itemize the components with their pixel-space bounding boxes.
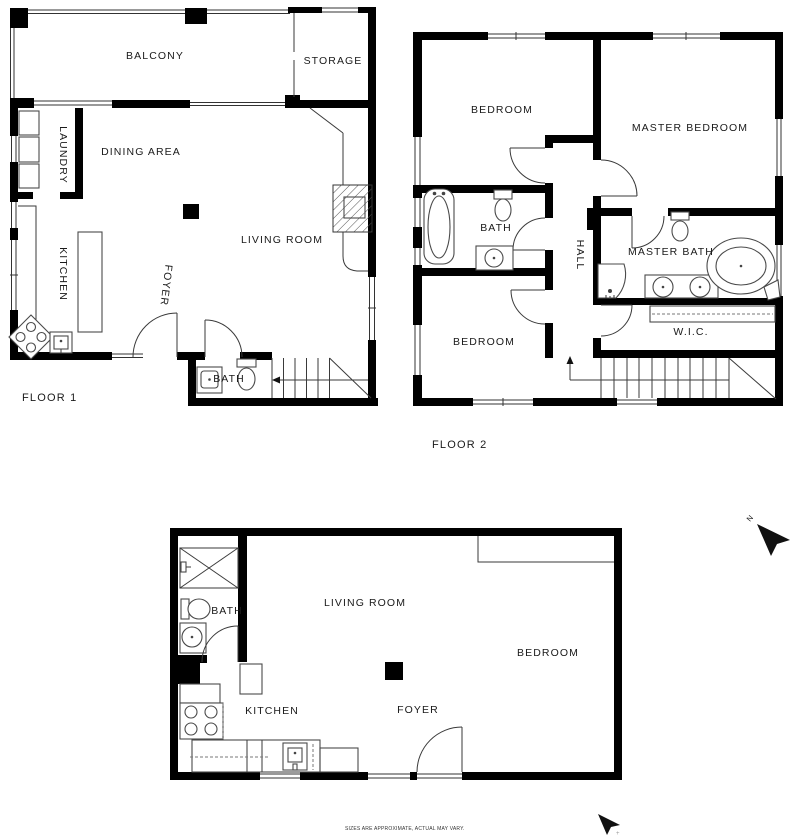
kitchen-sink-icon <box>50 332 72 353</box>
room-label-balcony: BALCONY <box>126 50 184 62</box>
toilet-icon-f2 <box>494 190 512 221</box>
room-label-master-bedroom: MASTER BEDROOM <box>632 122 748 134</box>
north-label: N <box>745 513 755 523</box>
room-label-dining-area: DINING AREA <box>101 146 181 158</box>
door-bath-f2 <box>513 218 545 250</box>
floorplan-page: BALCONY STORAGE LAUNDRY DINING AREA KITC… <box>0 0 800 840</box>
door-bedroom-bottom <box>511 290 545 324</box>
compass-tick: + <box>616 831 620 837</box>
shower-icon-lower <box>180 548 238 588</box>
door-master-bedroom <box>601 160 637 196</box>
stairs-direction-arrow <box>272 377 280 384</box>
lower-floor-plan: LIVING ROOM BEDROOM BATH KITCHEN FOYER <box>170 528 622 780</box>
door-bath-lower <box>202 626 238 662</box>
room-label-bath-lower: BATH <box>211 605 243 617</box>
entry-door-lower <box>417 727 462 772</box>
stairs-f1 <box>272 358 371 398</box>
room-label-wic: W.I.C. <box>673 326 708 338</box>
fireplace <box>310 108 372 271</box>
floor1-title: FLOOR 1 <box>22 392 77 404</box>
entry-threshold <box>417 772 462 780</box>
kitchen-island <box>240 664 262 694</box>
room-label-master-bath: MASTER BATH <box>628 246 714 258</box>
stove-icon-lower <box>180 703 223 739</box>
north-arrow-bottom: + <box>598 814 620 837</box>
room-label-foyer-lower: FOYER <box>397 704 439 716</box>
master-vanity-icon <box>645 275 718 298</box>
door-foyer <box>133 313 177 357</box>
closet-rod <box>650 306 775 322</box>
room-label-hall: HALL <box>574 240 586 271</box>
floor2-walls <box>413 32 783 406</box>
door-wic <box>601 305 632 336</box>
room-label-kitchen-lower: KITCHEN <box>245 705 299 717</box>
room-label-bedroom-bottom: BEDROOM <box>453 336 515 348</box>
room-label-living-room-f1: LIVING ROOM <box>241 234 323 246</box>
fridge-icon <box>180 684 220 703</box>
disclaimer-text: SIZES ARE APPROXIMATE, ACTUAL MAY VARY. <box>345 826 465 832</box>
room-label-bedroom-lower: BEDROOM <box>517 647 579 659</box>
floor2-plan: BEDROOM MASTER BEDROOM BATH HALL MASTER … <box>413 32 783 451</box>
shower-icon-f2 <box>598 264 626 299</box>
floor2-title: FLOOR 2 <box>432 439 487 451</box>
column <box>183 204 199 219</box>
bathtub-icon <box>424 189 454 264</box>
master-toilet-icon <box>671 212 689 241</box>
room-label-bath-f2: BATH <box>480 222 512 234</box>
room-label-kitchen-f1: KITCHEN <box>57 247 69 301</box>
door-bath-f1 <box>205 320 242 357</box>
floor1-plan: BALCONY STORAGE LAUNDRY DINING AREA KITC… <box>9 7 378 406</box>
north-arrow-top: N <box>745 513 790 556</box>
toilet-icon-lower <box>181 599 210 619</box>
door-master-bath <box>632 216 664 248</box>
stairs-f2 <box>567 356 777 399</box>
sink-icon-lower <box>180 623 206 653</box>
floorplan-canvas: BALCONY STORAGE LAUNDRY DINING AREA KITC… <box>0 0 800 840</box>
room-label-storage: STORAGE <box>304 55 363 67</box>
closet-line-lower <box>478 536 614 562</box>
stairs-up-arrow <box>567 356 574 364</box>
room-label-laundry: LAUNDRY <box>57 126 69 184</box>
washer-dryer-icons <box>19 111 39 188</box>
column-lower <box>385 662 403 680</box>
room-label-living-room-lower: LIVING ROOM <box>324 597 406 609</box>
bath-sink-icon-f2 <box>476 246 513 270</box>
door-bedroom-top <box>510 148 545 183</box>
room-label-foyer-f1: FOYER <box>157 264 174 307</box>
room-label-bedroom-top: BEDROOM <box>471 104 533 116</box>
room-label-bath-f1: BATH <box>213 373 245 385</box>
